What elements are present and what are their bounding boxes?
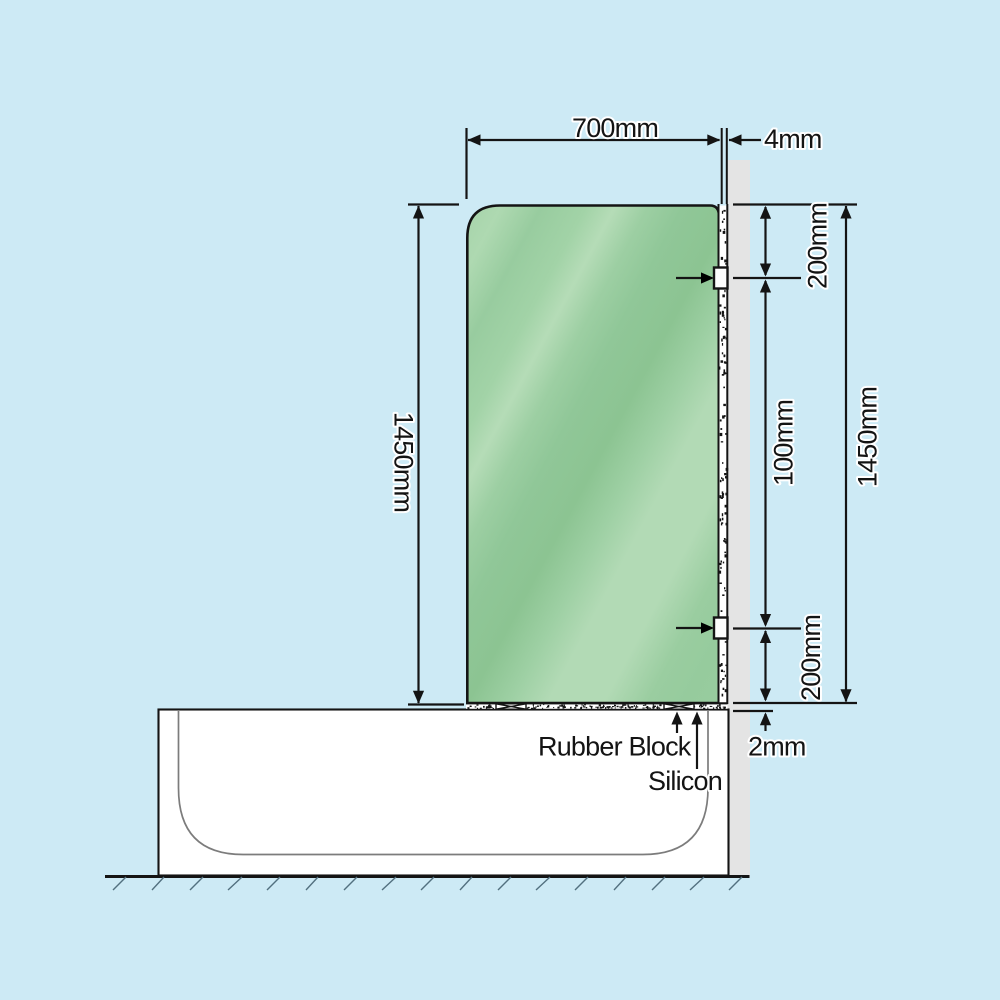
svg-text:2mm: 2mm	[748, 732, 806, 762]
svg-text:4mm: 4mm	[764, 124, 822, 154]
svg-text:1450mm: 1450mm	[389, 412, 419, 512]
svg-text:100mm: 100mm	[769, 400, 799, 486]
svg-text:Rubber Block: Rubber Block	[538, 732, 692, 762]
svg-text:200mm: 200mm	[803, 203, 833, 289]
svg-text:200mm: 200mm	[796, 615, 826, 701]
svg-text:1450mm: 1450mm	[853, 387, 883, 487]
svg-text:700mm: 700mm	[572, 113, 658, 143]
svg-text:Silicon: Silicon	[648, 766, 722, 796]
